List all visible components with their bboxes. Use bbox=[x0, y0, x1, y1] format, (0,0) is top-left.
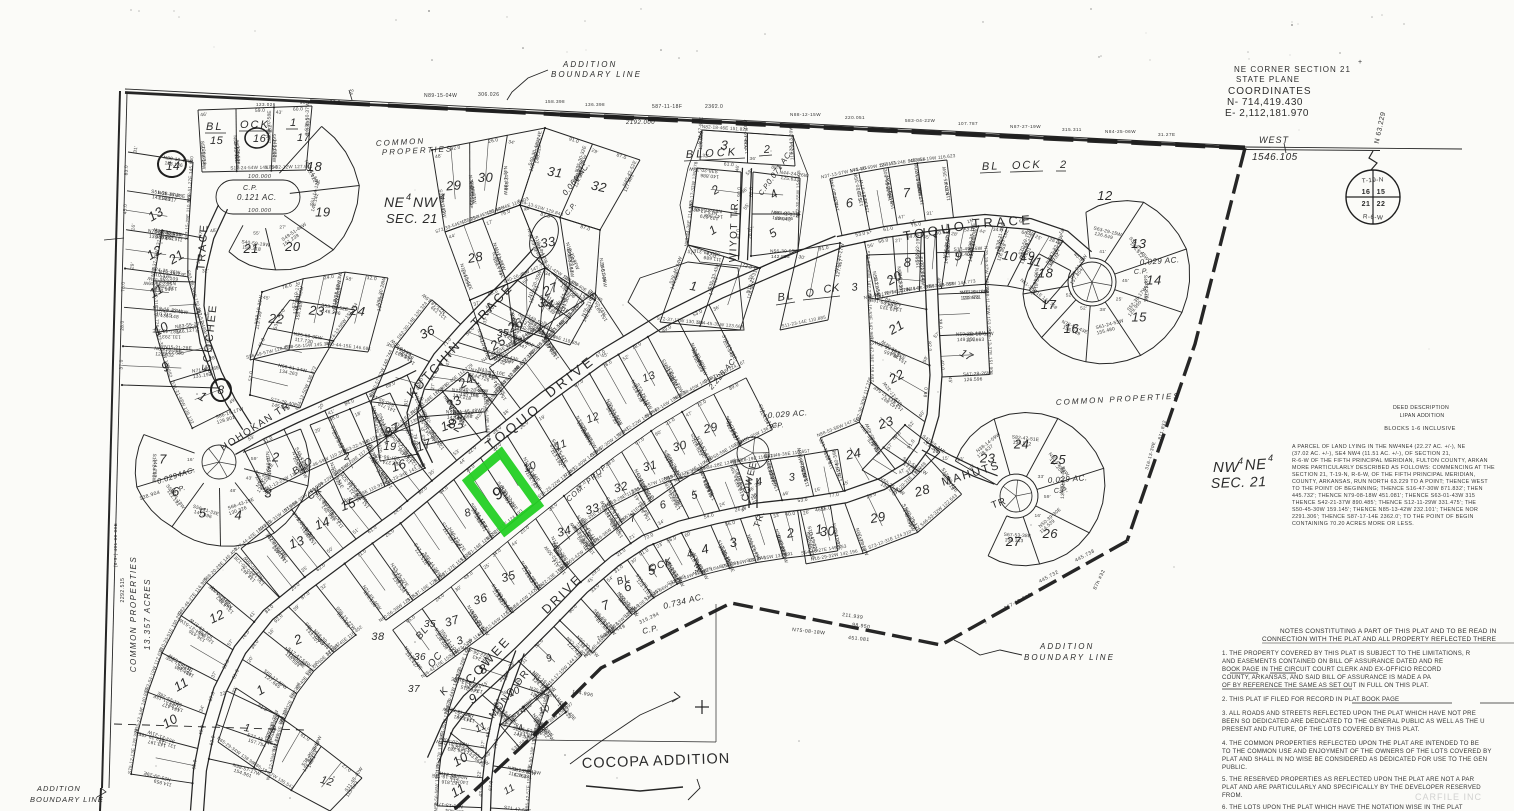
svg-text:19: 19 bbox=[383, 441, 396, 453]
svg-text:306.026: 306.026 bbox=[478, 92, 500, 98]
svg-text:25': 25' bbox=[1034, 234, 1043, 242]
svg-text:61.0: 61.0 bbox=[724, 162, 735, 169]
svg-text:126.526: 126.526 bbox=[235, 146, 241, 165]
svg-text:12: 12 bbox=[319, 774, 335, 789]
svg-text:0.029 AC.: 0.029 AC. bbox=[768, 408, 808, 420]
svg-text:52': 52' bbox=[1066, 293, 1073, 299]
svg-text:2192.000: 2192.000 bbox=[625, 120, 655, 126]
svg-text:127.804: 127.804 bbox=[744, 135, 750, 154]
svg-text:35: 35 bbox=[499, 568, 517, 585]
svg-text:25': 25' bbox=[1116, 296, 1123, 302]
svg-text:4: 4 bbox=[1268, 453, 1274, 463]
svg-text:110.346: 110.346 bbox=[599, 263, 608, 282]
svg-text:34: 34 bbox=[537, 295, 555, 313]
svg-text:TO THE COMMON USE AND ENJOYMEN: TO THE COMMON USE AND ENJOYMENT OF THE O… bbox=[1222, 748, 1492, 755]
svg-text:47': 47' bbox=[685, 410, 694, 419]
svg-text:16: 16 bbox=[253, 133, 267, 145]
svg-text:126.833: 126.833 bbox=[698, 131, 705, 150]
svg-text:N84-25-06W: N84-25-06W bbox=[1105, 129, 1136, 134]
svg-text:38.0: 38.0 bbox=[937, 319, 943, 330]
svg-text:144.579: 144.579 bbox=[916, 178, 925, 198]
svg-text:36': 36' bbox=[502, 408, 511, 417]
svg-text:S50-45-30W 159.145'; THENCE N8: S50-45-30W 159.145'; THENCE N85-13-42W 2… bbox=[1292, 507, 1478, 513]
svg-text:128.475: 128.475 bbox=[775, 216, 794, 222]
svg-text:E- 2,112,181.970: E- 2,112,181.970 bbox=[1225, 108, 1309, 119]
svg-text:4: 4 bbox=[700, 541, 711, 557]
svg-text:29: 29 bbox=[445, 177, 463, 193]
svg-text:PLAT AND SHALL IN NO WISE BE C: PLAT AND SHALL IN NO WISE BE CONSIDERED … bbox=[1222, 756, 1487, 763]
svg-text:5. THE RESERVED PROPERTIES: 5. THE RESERVED PROPERTIES AS REFLECTED … bbox=[1222, 776, 1475, 783]
svg-text:35': 35' bbox=[428, 468, 437, 477]
svg-text:7: 7 bbox=[159, 452, 167, 467]
svg-text:BOUNDARY LINE: BOUNDARY LINE bbox=[551, 70, 642, 79]
svg-text:TRACE: TRACE bbox=[195, 223, 210, 271]
svg-text:0.029 AC.: 0.029 AC. bbox=[1048, 473, 1088, 485]
svg-text:1: 1 bbox=[254, 681, 268, 698]
svg-text:18': 18' bbox=[354, 410, 363, 418]
svg-text:138.659: 138.659 bbox=[200, 146, 207, 165]
svg-text:47': 47' bbox=[898, 214, 906, 221]
svg-text:STATE PLANE: STATE PLANE bbox=[1236, 75, 1300, 84]
svg-text:8: 8 bbox=[903, 255, 912, 270]
svg-text:BEEN SO DEDICATED ARE DEDICATE: BEEN SO DEDICATED ARE DEDICATED TO THE G… bbox=[1222, 718, 1485, 725]
svg-text:150.372: 150.372 bbox=[916, 249, 923, 268]
svg-text:C.P.: C.P. bbox=[1134, 268, 1149, 276]
svg-text:6: 6 bbox=[845, 195, 855, 211]
svg-text:COCOPA ADDITION: COCOPA ADDITION bbox=[582, 751, 731, 772]
svg-text:15': 15' bbox=[481, 681, 490, 689]
svg-text:11: 11 bbox=[171, 674, 191, 694]
svg-text:30': 30' bbox=[798, 254, 806, 261]
svg-text:12: 12 bbox=[207, 606, 228, 626]
svg-text:13: 13 bbox=[145, 204, 166, 225]
svg-text:3. ALL ROADS AND STREETS RE: 3. ALL ROADS AND STREETS REFLECTED UPON … bbox=[1222, 710, 1476, 717]
svg-text:1: 1 bbox=[689, 278, 699, 294]
svg-text:60': 60' bbox=[918, 410, 927, 419]
svg-text:871.832: 871.832 bbox=[1157, 420, 1167, 441]
svg-text:9: 9 bbox=[545, 652, 555, 665]
svg-text:25.0: 25.0 bbox=[519, 525, 531, 536]
svg-text:WEST: WEST bbox=[1259, 135, 1290, 145]
svg-text:DRIVE: DRIVE bbox=[542, 352, 598, 400]
svg-text:16': 16' bbox=[1035, 513, 1042, 519]
svg-text:220.051: 220.051 bbox=[845, 115, 865, 120]
svg-text:4: 4 bbox=[440, 192, 446, 202]
svg-text:COMMON PROPERTIES: COMMON PROPERTIES bbox=[1056, 391, 1181, 407]
svg-text:S10-23-51E 150.262: S10-23-51E 150.262 bbox=[158, 610, 184, 653]
svg-text:27': 27' bbox=[430, 383, 437, 390]
svg-text:20': 20' bbox=[247, 655, 256, 664]
svg-text:26.0: 26.0 bbox=[488, 137, 499, 145]
svg-text:6: 6 bbox=[658, 499, 668, 512]
svg-text:34': 34' bbox=[508, 139, 516, 146]
svg-text:50': 50' bbox=[326, 546, 335, 555]
svg-text:28: 28 bbox=[912, 481, 932, 500]
svg-text:N89-15-04W: N89-15-04W bbox=[424, 93, 457, 99]
svg-text:36: 36 bbox=[414, 652, 426, 663]
svg-text:46': 46' bbox=[200, 112, 207, 118]
svg-text:BOOK PAGE IN T: BOOK PAGE IN THE CIRCUIT COURT CLERK AND… bbox=[1222, 666, 1442, 673]
svg-text:34.0: 34.0 bbox=[491, 547, 503, 558]
svg-text:3: 3 bbox=[788, 471, 797, 484]
svg-text:142.994: 142.994 bbox=[503, 171, 509, 190]
svg-text:90.0: 90.0 bbox=[300, 100, 311, 105]
svg-text:81.0: 81.0 bbox=[299, 732, 311, 743]
svg-text:CK: CK bbox=[823, 282, 841, 296]
svg-text:LIPAN ADDITION: LIPAN ADDITION bbox=[1400, 413, 1445, 419]
svg-text:2: 2 bbox=[1059, 159, 1067, 171]
svg-text:36': 36' bbox=[712, 304, 721, 312]
svg-text:N 63.229: N 63.229 bbox=[1374, 111, 1388, 144]
svg-text:30': 30' bbox=[454, 585, 463, 594]
svg-text:1. THE PROPERTY COVERED BY: 1. THE PROPERTY COVERED BY THIS PLAT IS … bbox=[1222, 650, 1471, 657]
svg-text:43': 43' bbox=[246, 476, 253, 482]
svg-text:144.262: 144.262 bbox=[152, 459, 158, 478]
svg-text:31: 31 bbox=[546, 164, 564, 181]
svg-text:43': 43' bbox=[276, 110, 283, 116]
svg-text:0.029 AC.: 0.029 AC. bbox=[1140, 255, 1180, 267]
svg-text:59': 59' bbox=[1044, 494, 1051, 500]
svg-text:FROM.: FROM. bbox=[1222, 792, 1243, 799]
svg-text:2292.515: 2292.515 bbox=[120, 578, 126, 603]
svg-text:20': 20' bbox=[314, 427, 323, 435]
svg-text:4: 4 bbox=[1238, 456, 1244, 466]
svg-text:52': 52' bbox=[1080, 306, 1087, 312]
svg-text:S53-15-29E 110.519: S53-15-29E 110.519 bbox=[184, 194, 192, 240]
svg-text:57': 57' bbox=[226, 638, 235, 647]
svg-text:16: 16 bbox=[1362, 189, 1371, 196]
svg-text:45': 45' bbox=[947, 377, 953, 384]
svg-text:34.0: 34.0 bbox=[547, 502, 559, 513]
svg-text:MORE PARTICULARLY DESCRIBED AS: MORE PARTICULARLY DESCRIBED AS FOLLOWS: … bbox=[1292, 465, 1495, 471]
svg-text:COUNTY, ARKANSAS, AND SAID BIL: COUNTY, ARKANSAS, AND SAID BILL OF ASSUR… bbox=[1222, 674, 1432, 681]
svg-text:55': 55' bbox=[253, 231, 260, 237]
svg-text:S46-53-32W 122.543: S46-53-32W 122.543 bbox=[919, 493, 958, 528]
svg-text:27': 27' bbox=[279, 224, 286, 230]
svg-text:13: 13 bbox=[641, 369, 658, 385]
svg-text:ADDITION: ADDITION bbox=[36, 784, 81, 793]
svg-text:6. THE LOTS UPON THE PLAT W: 6. THE LOTS UPON THE PLAT WHICH HAVE THE… bbox=[1222, 804, 1463, 811]
svg-text:24.0: 24.0 bbox=[434, 593, 446, 604]
svg-text:46': 46' bbox=[735, 164, 742, 171]
svg-text:122.821: 122.821 bbox=[962, 295, 981, 302]
svg-text:19: 19 bbox=[315, 205, 330, 220]
svg-text:17: 17 bbox=[1041, 297, 1057, 312]
svg-text:CONNECTION WITH THE PLAT AND A: CONNECTION WITH THE PLAT AND ALL PROPERT… bbox=[1262, 636, 1496, 643]
svg-text:R-6-W OF THE FIFTH PRINCIPAL M: R-6-W OF THE FIFTH PRINCIPAL MERIDIAN, F… bbox=[1292, 458, 1488, 464]
svg-text:87.0: 87.0 bbox=[616, 152, 628, 161]
svg-text:451.081: 451.081 bbox=[848, 635, 870, 643]
svg-text:24': 24' bbox=[718, 501, 727, 509]
svg-text:NE: NE bbox=[384, 194, 405, 210]
svg-text:NOTES CONSTITUTING A PART OF T: NOTES CONSTITUTING A PART OF THIS PLAT A… bbox=[1280, 628, 1497, 635]
svg-text:12: 12 bbox=[1097, 188, 1113, 203]
svg-text:36: 36 bbox=[471, 590, 489, 608]
svg-text:BL: BL bbox=[206, 121, 223, 133]
svg-text:367-18-919: 367-18-919 bbox=[1003, 592, 1033, 612]
svg-text:+: + bbox=[1358, 59, 1363, 66]
svg-text:76.0: 76.0 bbox=[240, 629, 251, 641]
svg-text:7: 7 bbox=[902, 185, 911, 201]
svg-text:22: 22 bbox=[267, 310, 285, 326]
svg-text:30: 30 bbox=[478, 170, 494, 185]
svg-text:118.870: 118.870 bbox=[944, 182, 952, 201]
svg-text:OCK: OCK bbox=[240, 119, 270, 131]
svg-text:TR.: TR. bbox=[751, 509, 766, 529]
svg-text:36: 36 bbox=[417, 322, 438, 342]
svg-text:17': 17' bbox=[521, 272, 528, 278]
svg-text:1546.105: 1546.105 bbox=[1252, 152, 1298, 163]
svg-text:SEC. 21: SEC. 21 bbox=[1211, 473, 1267, 491]
svg-text:156.485: 156.485 bbox=[468, 186, 474, 205]
svg-text:2: 2 bbox=[708, 182, 722, 198]
svg-text:37: 37 bbox=[408, 684, 420, 695]
svg-text:15: 15 bbox=[210, 135, 224, 147]
svg-text:WIYOT TR.: WIYOT TR. bbox=[728, 197, 741, 262]
svg-text:C.P.: C.P. bbox=[243, 185, 258, 192]
svg-text:60': 60' bbox=[654, 429, 663, 438]
svg-text:THENCE S42-21-37W 890.485'; TH: THENCE S42-21-37W 890.485'; THENCE S12-1… bbox=[1292, 500, 1476, 506]
svg-text:OCK: OCK bbox=[1012, 159, 1042, 172]
svg-text:S36-42-31E 116.726: S36-42-31E 116.726 bbox=[153, 282, 160, 328]
svg-text:123.026: 123.026 bbox=[256, 102, 276, 107]
svg-text:3: 3 bbox=[851, 281, 860, 294]
svg-text:ADDITION: ADDITION bbox=[1039, 642, 1094, 651]
svg-text:15': 15' bbox=[942, 456, 949, 462]
svg-text:16': 16' bbox=[187, 457, 194, 463]
svg-text:48.0: 48.0 bbox=[935, 277, 941, 287]
svg-text:HOHOKAN TR.: HOHOKAN TR. bbox=[219, 398, 297, 454]
svg-text:83.0: 83.0 bbox=[124, 165, 130, 175]
svg-text:49': 49' bbox=[228, 397, 237, 406]
svg-text:445.732'; THENCE N79-08-18W 45: 445.732'; THENCE N79-08-18W 451.081'; TH… bbox=[1292, 493, 1475, 499]
svg-text:CP.: CP. bbox=[772, 422, 785, 430]
svg-text:26': 26' bbox=[803, 509, 811, 516]
svg-text:2291.306'; THENCE S87-17-14E 2: 2291.306'; THENCE S87-17-14E 2362.0'; TO… bbox=[1292, 514, 1474, 520]
svg-text:315.311: 315.311 bbox=[1062, 127, 1082, 132]
svg-text:142.709: 142.709 bbox=[476, 334, 488, 354]
svg-text:15: 15 bbox=[1377, 189, 1386, 196]
svg-text:587-11-18F: 587-11-18F bbox=[652, 104, 682, 110]
svg-text:COMMON PROPERTIES: COMMON PROPERTIES bbox=[129, 556, 138, 672]
svg-text:SECTION 21, T-19-N, R-6-W, OF: SECTION 21, T-19-N, R-6-W, OF THE FIFTH … bbox=[1292, 472, 1475, 478]
svg-text:87h #32: 87h #32 bbox=[1092, 569, 1107, 591]
svg-text:1: 1 bbox=[290, 117, 297, 129]
svg-text:10: 10 bbox=[537, 703, 551, 716]
svg-text:34': 34' bbox=[657, 519, 666, 528]
svg-text:S73-12-31E 124.310: S73-12-31E 124.310 bbox=[868, 529, 913, 550]
svg-text:17: 17 bbox=[957, 347, 975, 364]
svg-text:T-19-N: T-19-N bbox=[1362, 176, 1384, 185]
svg-text:PUBLIC.: PUBLIC. bbox=[1222, 764, 1247, 771]
svg-text:39': 39' bbox=[484, 751, 493, 759]
svg-text:(6-9-) 401-00-09E: (6-9-) 401-00-09E bbox=[113, 523, 118, 567]
svg-text:OC: OC bbox=[426, 650, 445, 670]
svg-text:44': 44' bbox=[511, 539, 520, 548]
svg-text:57.0: 57.0 bbox=[634, 436, 646, 447]
svg-text:31.27E: 31.27E bbox=[1158, 132, 1176, 137]
svg-text:25': 25' bbox=[482, 562, 491, 571]
svg-text:N88-12-15W: N88-12-15W bbox=[790, 112, 821, 117]
svg-text:49': 49' bbox=[782, 490, 790, 498]
svg-text:29: 29 bbox=[868, 509, 887, 527]
svg-text:NE CORNER SECTION 21: NE CORNER SECTION 21 bbox=[1234, 65, 1351, 74]
svg-text:36': 36' bbox=[750, 156, 757, 162]
svg-text:COUNTY, ARKANSAS, RUN NORTH 63: COUNTY, ARKANSAS, RUN NORTH 63.229 TO A … bbox=[1292, 479, 1488, 485]
svg-text:O: O bbox=[805, 287, 816, 300]
svg-text:OF BY REFERENCE THE SAME AS SE: OF BY REFERENCE THE SAME AS SET OUT IN F… bbox=[1222, 682, 1429, 689]
svg-text:0.734 AC.: 0.734 AC. bbox=[662, 591, 705, 611]
svg-text:130.313: 130.313 bbox=[1004, 537, 1023, 544]
svg-text:TRACE: TRACE bbox=[971, 212, 1033, 231]
svg-text:N79-19-37W 148.601: N79-19-37W 148.601 bbox=[983, 246, 989, 294]
svg-text:7: 7 bbox=[599, 597, 612, 614]
svg-text:N82-46-27E 116.965: N82-46-27E 116.965 bbox=[177, 576, 209, 616]
svg-text:90.0: 90.0 bbox=[567, 603, 578, 615]
svg-text:134.996: 134.996 bbox=[572, 689, 594, 699]
svg-text:136.398: 136.398 bbox=[585, 102, 605, 107]
svg-text:BLOCKS 1-6 INCLUSIVE: BLOCKS 1-6 INCLUSIVE bbox=[1384, 426, 1455, 432]
svg-text:23': 23' bbox=[957, 456, 965, 463]
svg-text:24.0: 24.0 bbox=[392, 505, 404, 516]
svg-text:COORDINATES: COORDINATES bbox=[1228, 86, 1312, 97]
svg-text:45': 45' bbox=[601, 352, 609, 359]
svg-text:17': 17' bbox=[486, 219, 495, 227]
svg-text:N- 714,419.430: N- 714,419.430 bbox=[1227, 97, 1303, 108]
svg-text:21.0: 21.0 bbox=[665, 417, 677, 427]
svg-text:S88-20-29E 146.403: S88-20-29E 146.403 bbox=[202, 546, 238, 582]
svg-text:DEED DESCRIPTION: DEED DESCRIPTION bbox=[1393, 405, 1449, 411]
svg-text:31': 31' bbox=[133, 146, 140, 154]
svg-text:93.0: 93.0 bbox=[330, 99, 341, 104]
svg-text:24: 24 bbox=[348, 302, 366, 319]
svg-text:30: 30 bbox=[819, 523, 836, 539]
svg-text:23: 23 bbox=[307, 302, 325, 319]
svg-text:23': 23' bbox=[932, 448, 939, 454]
svg-text:3: 3 bbox=[728, 534, 739, 550]
svg-text:35: 35 bbox=[497, 328, 509, 339]
svg-text:5: 5 bbox=[690, 489, 700, 502]
svg-text:100.000: 100.000 bbox=[248, 174, 272, 180]
svg-text:15': 15' bbox=[814, 486, 822, 493]
svg-text:NE: NE bbox=[1244, 456, 1267, 474]
svg-text:78.0: 78.0 bbox=[281, 282, 293, 291]
svg-text:60.0: 60.0 bbox=[293, 106, 303, 112]
svg-text:2. THIS PLAT IF FILED FOR R: 2. THIS PLAT IF FILED FOR RECORD IN PLAT… bbox=[1222, 696, 1399, 703]
svg-text:21: 21 bbox=[165, 247, 187, 268]
svg-text:3: 3 bbox=[455, 634, 466, 648]
svg-text:69.0: 69.0 bbox=[891, 430, 902, 442]
svg-text:89.0: 89.0 bbox=[728, 382, 740, 392]
svg-text:27.0: 27.0 bbox=[340, 763, 352, 774]
svg-text:R-6-W: R-6-W bbox=[1363, 213, 1384, 221]
svg-text:114.663: 114.663 bbox=[966, 337, 985, 344]
svg-text:N87-27-19W: N87-27-19W bbox=[1010, 124, 1041, 129]
svg-text:22': 22' bbox=[476, 770, 483, 777]
svg-text:32': 32' bbox=[320, 583, 329, 592]
svg-text:28: 28 bbox=[465, 248, 484, 266]
svg-text:21: 21 bbox=[1362, 201, 1371, 208]
svg-text:107.787: 107.787 bbox=[958, 121, 978, 126]
svg-text:S25-20-58W 147.272: S25-20-58W 147.272 bbox=[866, 251, 873, 299]
svg-text:48.0: 48.0 bbox=[605, 457, 617, 468]
svg-text:87.0: 87.0 bbox=[579, 224, 591, 233]
svg-text:BOUNDARY LINE: BOUNDARY LINE bbox=[1024, 653, 1115, 662]
svg-text:47': 47' bbox=[898, 467, 907, 476]
svg-text:62.0: 62.0 bbox=[749, 187, 755, 197]
svg-text:21: 21 bbox=[885, 317, 907, 338]
svg-text:38: 38 bbox=[371, 631, 385, 643]
svg-text:11: 11 bbox=[502, 782, 517, 797]
svg-text:2: 2 bbox=[763, 144, 771, 156]
svg-text:BL: BL bbox=[777, 290, 796, 304]
svg-text:27': 27' bbox=[747, 226, 755, 234]
svg-text:14: 14 bbox=[166, 159, 180, 173]
svg-text:144.356: 144.356 bbox=[459, 268, 471, 288]
svg-text:34': 34' bbox=[198, 704, 206, 713]
svg-text:48': 48' bbox=[435, 153, 443, 160]
svg-text:S75-12-13E 128.399: S75-12-13E 128.399 bbox=[127, 728, 139, 774]
svg-text:S82-54-19W 112.638: S82-54-19W 112.638 bbox=[143, 647, 164, 693]
svg-text:82.0: 82.0 bbox=[926, 341, 933, 352]
svg-text:35': 35' bbox=[300, 565, 309, 574]
svg-text:58': 58' bbox=[345, 276, 353, 283]
svg-text:24: 24 bbox=[844, 445, 863, 463]
svg-text:57.0: 57.0 bbox=[248, 371, 255, 382]
svg-text:4. THE COMMON PROPERTIES RE: 4. THE COMMON PROPERTIES REFLECTED UPON … bbox=[1222, 740, 1479, 747]
svg-text:126.596: 126.596 bbox=[964, 376, 983, 383]
svg-text:7: 7 bbox=[628, 512, 638, 526]
svg-text:13: 13 bbox=[287, 532, 307, 551]
svg-text:(37.02 AC. +/-), SE4 NW4 (11: (37.02 AC. +/-), SE4 NW4 (11.51 AC. +/-)… bbox=[1292, 451, 1451, 457]
svg-text:10: 10 bbox=[160, 711, 181, 732]
svg-text:PRESENT AND FUTURE, OF THE LOT: PRESENT AND FUTURE, OF THE LOTS COVERED … bbox=[1222, 726, 1420, 733]
svg-text:N89-44-36E 114.382: N89-44-36E 114.382 bbox=[684, 200, 694, 246]
svg-text:2: 2 bbox=[291, 631, 305, 648]
svg-text:AND EASEMENTS CONTAINED ON BIL: AND EASEMENTS CONTAINED ON BILL OF ASSUR… bbox=[1222, 658, 1443, 665]
svg-text:BL: BL bbox=[982, 160, 1000, 173]
svg-text:95.0: 95.0 bbox=[405, 614, 417, 625]
svg-text:48.0: 48.0 bbox=[463, 570, 475, 581]
svg-text:2362.0: 2362.0 bbox=[705, 104, 723, 110]
svg-text:37': 37' bbox=[210, 670, 218, 679]
svg-text:4: 4 bbox=[406, 192, 412, 202]
svg-text:31: 31 bbox=[641, 457, 658, 474]
svg-text:BOUNDARY LINE: BOUNDARY LINE bbox=[30, 795, 104, 804]
svg-text:33': 33' bbox=[1038, 474, 1045, 480]
svg-text:37: 37 bbox=[443, 612, 462, 630]
svg-text:C.P.: C.P. bbox=[1054, 487, 1069, 495]
svg-text:72.0: 72.0 bbox=[741, 262, 753, 271]
svg-text:16': 16' bbox=[130, 223, 137, 231]
svg-text:1: 1 bbox=[706, 222, 719, 238]
svg-text:C.P.: C.P. bbox=[641, 623, 659, 636]
svg-text:29: 29 bbox=[701, 419, 719, 436]
svg-text:35: 35 bbox=[424, 619, 436, 630]
svg-text:158.398: 158.398 bbox=[545, 99, 565, 104]
svg-text:59.0: 59.0 bbox=[255, 108, 265, 114]
svg-text:22: 22 bbox=[1377, 201, 1386, 208]
svg-text:91.0: 91.0 bbox=[568, 136, 580, 145]
svg-text:31': 31' bbox=[926, 210, 934, 217]
svg-text:23: 23 bbox=[875, 413, 896, 433]
svg-text:56': 56' bbox=[867, 242, 875, 249]
svg-text:118.407: 118.407 bbox=[954, 252, 973, 259]
svg-text:TR: TR bbox=[990, 496, 1008, 512]
svg-text:41': 41' bbox=[1099, 249, 1106, 255]
svg-text:142.772: 142.772 bbox=[832, 192, 842, 212]
svg-text:S82-28-33E: S82-28-33E bbox=[774, 211, 802, 217]
